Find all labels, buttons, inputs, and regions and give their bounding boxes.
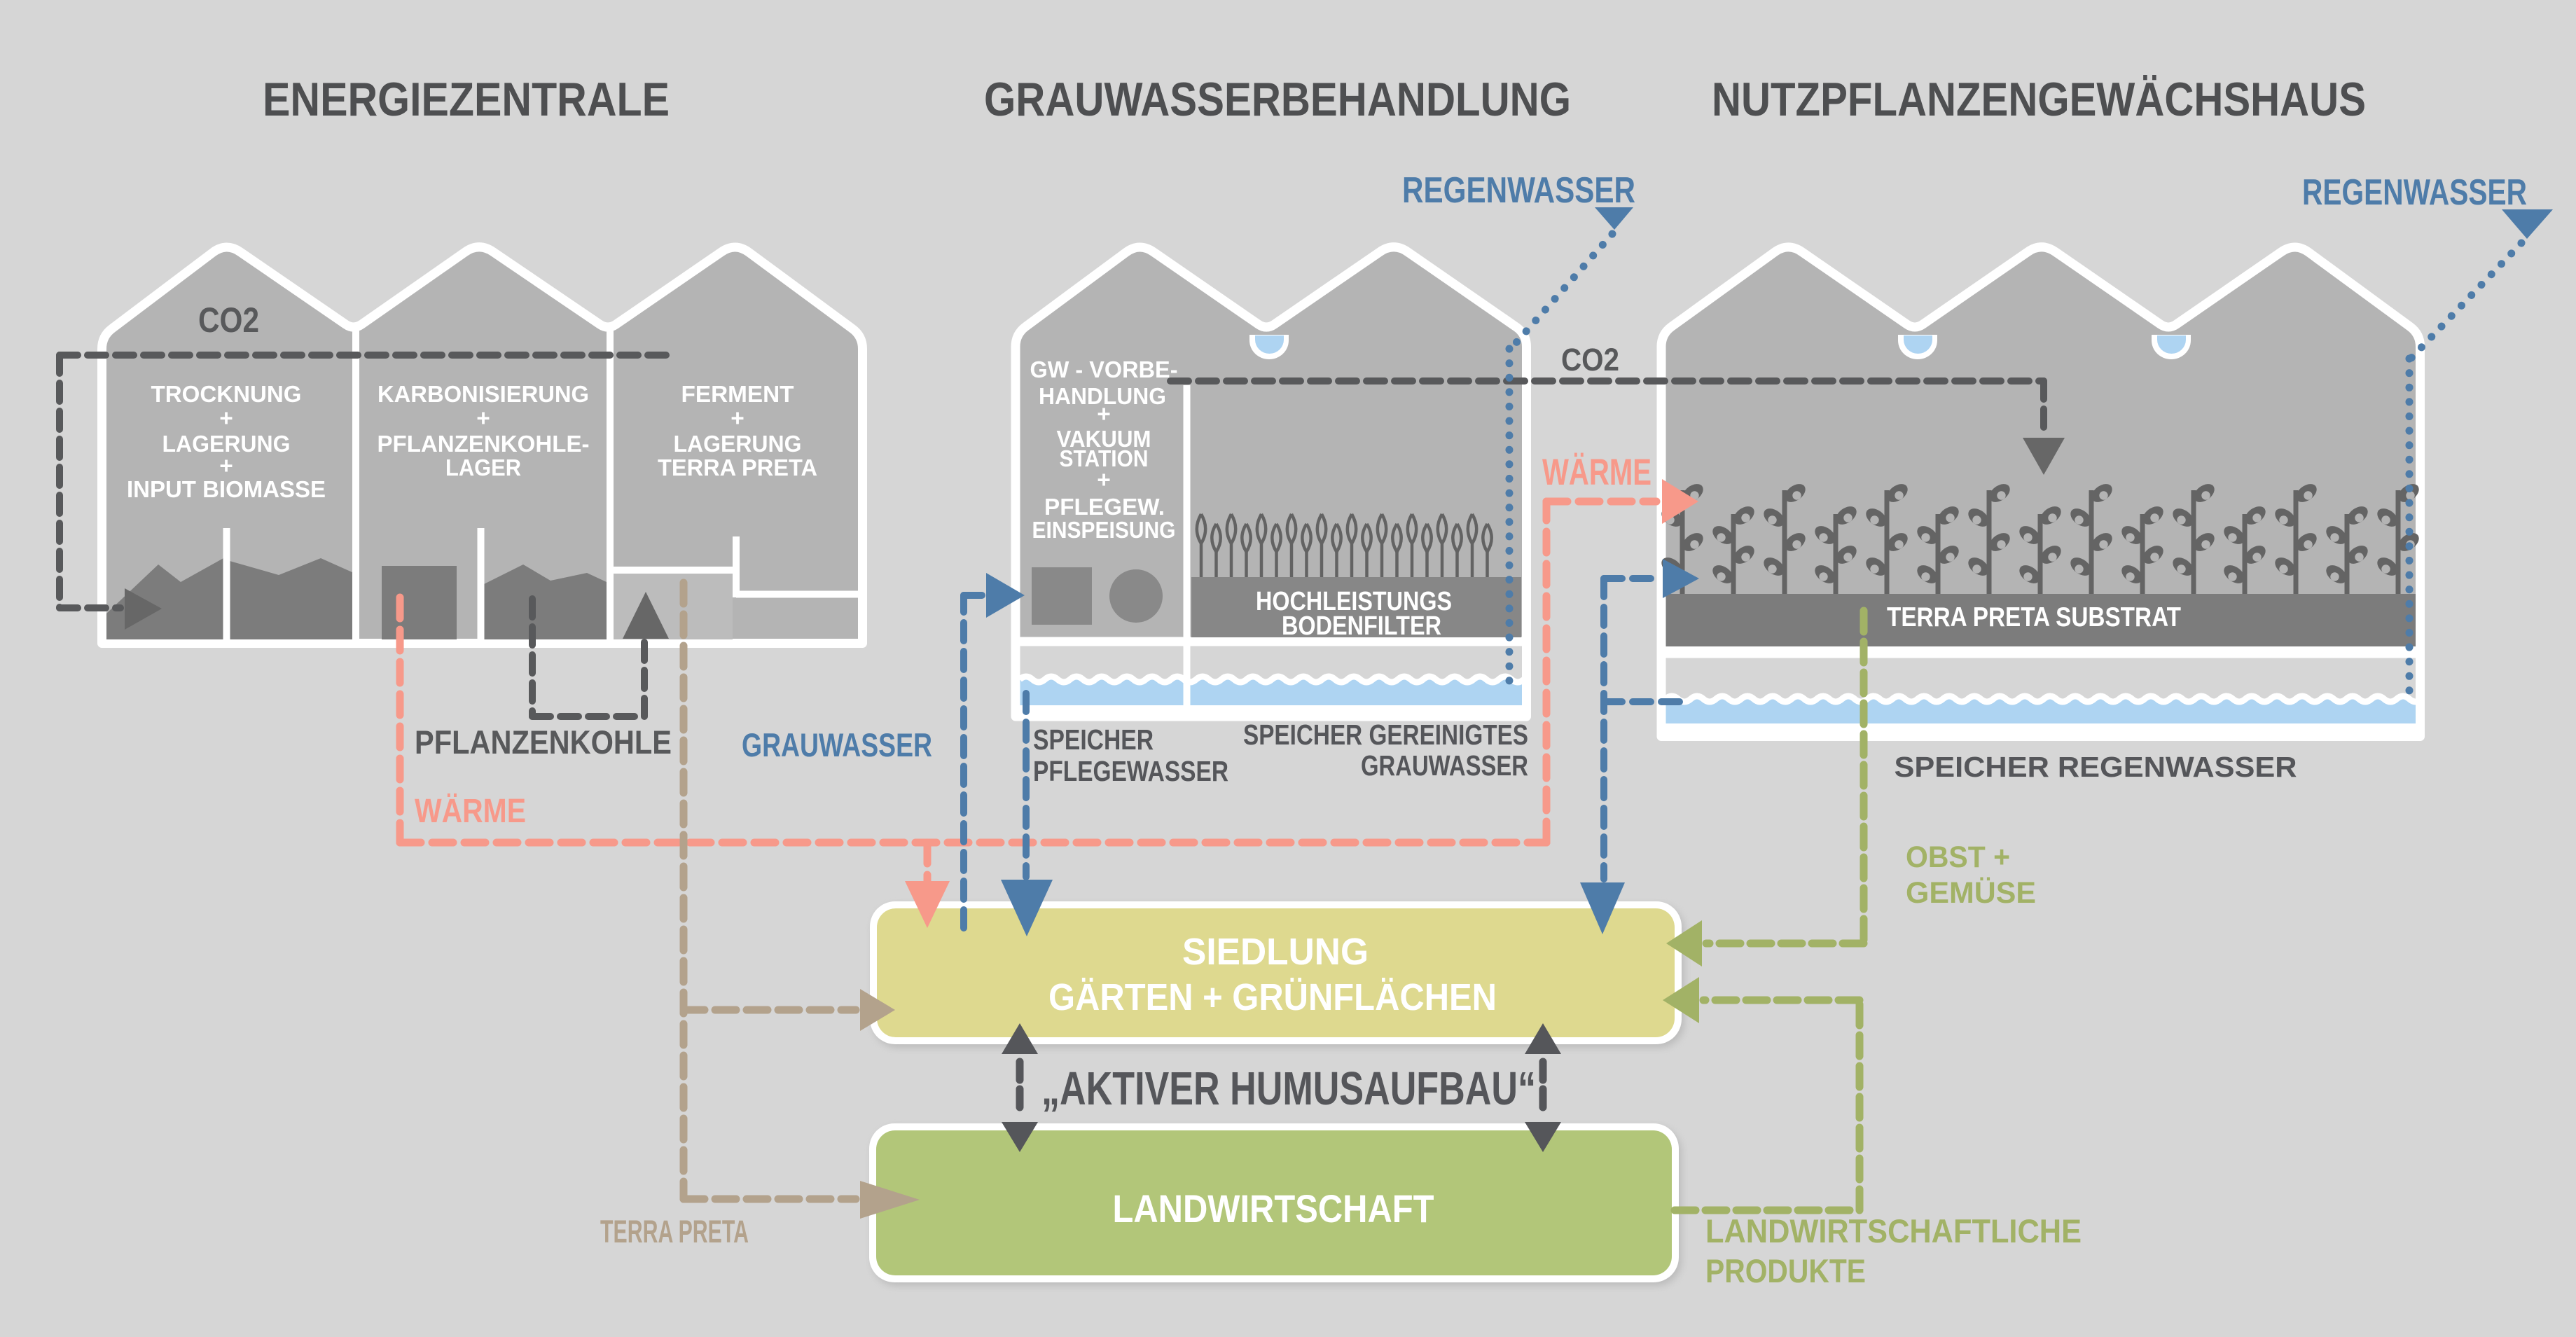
svg-text:FERMENT: FERMENT [681,382,795,408]
svg-text:GÄRTEN + GRÜNFLÄCHEN: GÄRTEN + GRÜNFLÄCHEN [1048,976,1497,1018]
svg-text:LANDWIRTSCHAFT: LANDWIRTSCHAFT [1113,1186,1434,1231]
svg-text:EINSPEISUNG: EINSPEISUNG [1032,518,1176,543]
svg-text:PFLEGEW.: PFLEGEW. [1044,494,1165,520]
svg-text:SPEICHER REGENWASSER: SPEICHER REGENWASSER [1895,751,2297,783]
svg-text:TERRA PRETA SUBSTRAT: TERRA PRETA SUBSTRAT [1887,602,2181,632]
svg-text:+: + [219,453,233,479]
svg-text:PFLANZENKOHLE: PFLANZENKOHLE [415,723,672,761]
svg-text:TERRA PRETA: TERRA PRETA [658,455,817,481]
svg-text:+: + [730,406,745,431]
svg-text:GW - VORBE-: GW - VORBE- [1030,357,1178,383]
svg-text:SIEDLUNG: SIEDLUNG [1182,931,1369,973]
svg-text:+: + [1097,401,1111,427]
svg-text:„AKTIVER HUMUSAUFBAU“: „AKTIVER HUMUSAUFBAU“ [1041,1062,1536,1115]
svg-text:GEMÜSE: GEMÜSE [1906,876,2036,910]
svg-text:+: + [476,406,490,431]
svg-text:SPEICHER: SPEICHER [1033,723,1154,756]
svg-text:KARBONISIERUNG: KARBONISIERUNG [378,382,589,408]
svg-text:GRAUWASSER: GRAUWASSER [742,726,932,763]
svg-text:TROCKNUNG: TROCKNUNG [151,382,302,408]
svg-text:SPEICHER GEREINIGTES: SPEICHER GEREINIGTES [1243,719,1528,751]
svg-text:GRAUWASSERBEHANDLUNG: GRAUWASSERBEHANDLUNG [984,73,1571,126]
svg-text:REGENWASSER: REGENWASSER [2302,172,2527,213]
svg-text:LANDWIRTSCHAFTLICHE: LANDWIRTSCHAFTLICHE [1705,1212,2082,1249]
svg-text:+: + [1097,467,1111,493]
svg-text:NUTZPFLANZENGEWÄCHSHAUS: NUTZPFLANZENGEWÄCHSHAUS [1712,73,2366,126]
svg-text:WÄRME: WÄRME [415,793,526,830]
svg-text:REGENWASSER: REGENWASSER [1402,170,1635,211]
svg-text:OBST +: OBST + [1906,840,2010,874]
svg-text:BODENFILTER: BODENFILTER [1282,611,1441,641]
svg-text:PFLEGEWASSER: PFLEGEWASSER [1033,755,1228,787]
svg-text:PFLANZENKOHLE-: PFLANZENKOHLE- [378,431,590,457]
svg-text:WÄRME: WÄRME [1542,452,1651,493]
svg-text:+: + [219,406,233,431]
svg-text:LAGER: LAGER [445,455,521,481]
svg-text:PRODUKTE: PRODUKTE [1705,1252,1866,1289]
svg-text:LAGERUNG: LAGERUNG [674,431,802,457]
svg-text:GRAUWASSER: GRAUWASSER [1361,749,1528,782]
svg-text:CO2: CO2 [198,300,259,340]
svg-text:TERRA PRETA: TERRA PRETA [600,1214,749,1249]
svg-text:ENERGIEZENTRALE: ENERGIEZENTRALE [263,73,670,126]
svg-text:INPUT BIOMASSE: INPUT BIOMASSE [127,477,326,503]
svg-text:CO2: CO2 [1561,342,1619,377]
